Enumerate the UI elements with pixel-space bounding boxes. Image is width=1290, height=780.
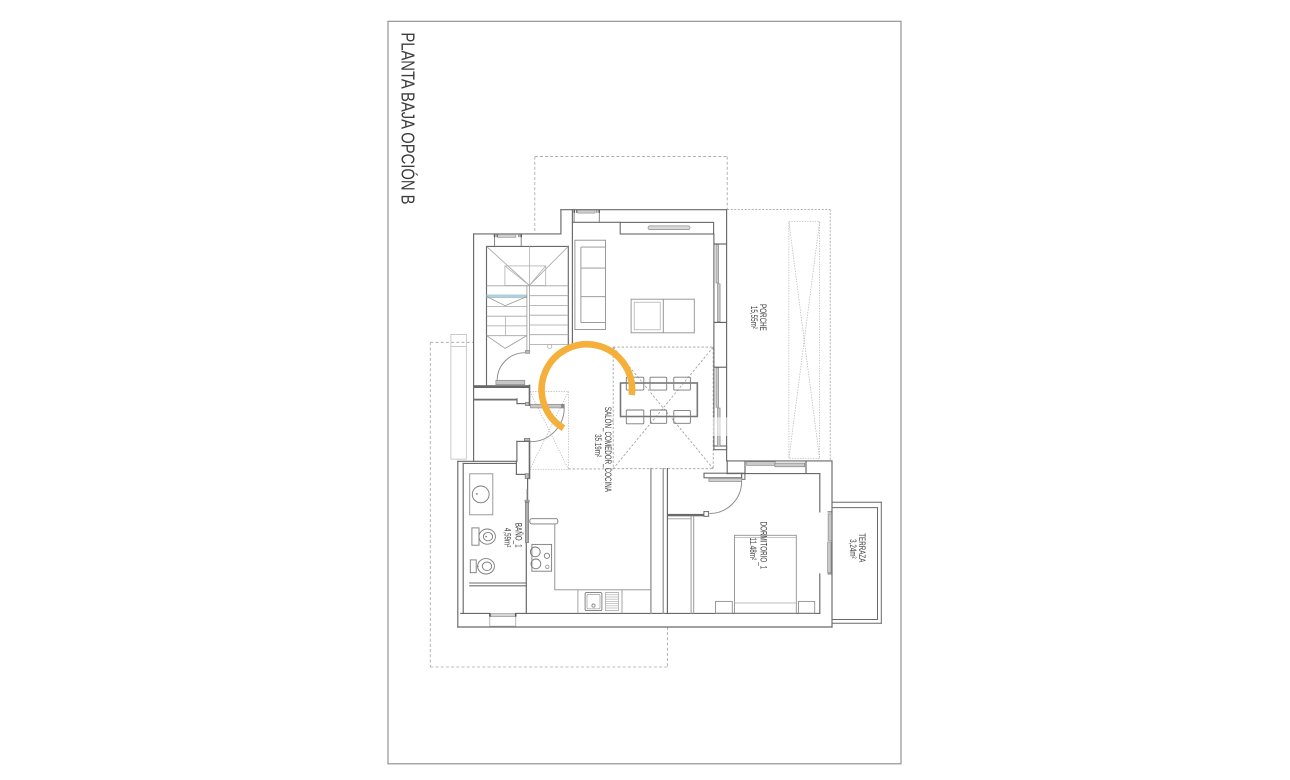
- svg-text:15,55m²: 15,55m²: [749, 306, 759, 329]
- svg-text:11.48m²: 11.48m²: [748, 538, 758, 561]
- svg-text:TERRAZA: TERRAZA: [856, 533, 866, 563]
- svg-text:4,59m²: 4,59m²: [502, 528, 512, 548]
- svg-text:PORCHE: PORCHE: [758, 304, 768, 331]
- svg-text:SALÓN_COMEDOR_COCINA: SALÓN_COMEDOR_COCINA: [602, 407, 612, 493]
- svg-text:35.19m²: 35.19m²: [593, 434, 603, 457]
- svg-text:3,24m²: 3,24m²: [847, 539, 857, 559]
- svg-text:BAÑO_1: BAÑO_1: [513, 523, 523, 548]
- svg-text:DORMITORIO_1: DORMITORIO_1: [758, 522, 768, 570]
- svg-text:PLANTA BAJA OPCIÓN B: PLANTA BAJA OPCIÓN B: [397, 32, 418, 204]
